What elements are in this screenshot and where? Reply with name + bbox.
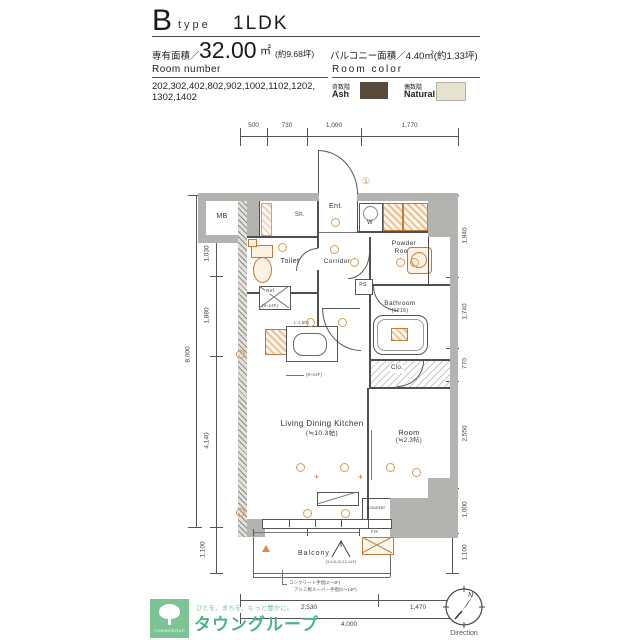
window-mullion [289,519,290,527]
room-numbers-line2: 1302,1402 [152,92,197,103]
area-tsubo: (約9.68坪) [275,48,314,60]
balcony-bottom-1 [253,573,390,574]
cabinet-2 [403,203,428,231]
logo-mark-text: TOWNGROUP [150,628,189,633]
wall-toilet-right-lower [317,270,319,293]
wall-row1-left [247,201,259,237]
wall-kitchen-west [317,292,319,328]
light-icon [278,243,287,252]
dim-label: 770 [462,347,469,381]
ps-label: PS [355,282,371,288]
wall-top-left [238,193,319,201]
area-unit: ㎡ [260,42,271,58]
balcony-label: Balcony [298,550,330,559]
layout-label: 1LDK [233,13,289,35]
dim-label: 1,000 [307,122,361,129]
ash-name: Ash [332,89,349,99]
dim-tick [240,128,241,146]
light-icon [386,463,395,472]
dim-line [216,195,217,573]
light-icon [396,258,405,267]
room-size: (≒2.3帖) [384,438,434,446]
shoe-shelf [261,203,272,236]
dim-label: 1,880 [204,299,211,333]
balcony-bottom-2 [253,577,390,578]
sill-tick [253,529,254,536]
dim-tick [210,527,223,528]
room-numbers-line1: 202,302,402,802,902,1002,1102,1202, [152,81,315,92]
room-color-rule [332,77,480,78]
light-icon [330,245,339,254]
wall-bottom-right-step [428,478,458,498]
room-number-rule [152,77,328,78]
ldk-size: (≒10.3帖) [262,430,382,438]
fridge-label: Ref. [265,288,277,294]
dim-label: 1,940 [462,219,469,253]
bathroom-size: (1216) [376,308,424,314]
counter-diagonal [317,492,357,504]
dim-label: 730 [267,122,307,129]
dim-tick [210,573,223,574]
light-icon [236,350,245,359]
dim-line [240,136,458,137]
light-icon [306,318,315,327]
dim-tick [210,276,223,277]
logo-name: タウングループ [194,610,319,635]
room-number-label: Room number [152,64,221,75]
ent-label: Ent. [324,203,348,212]
dim-label: 2,550 [462,417,469,451]
entrance-door-arc [318,150,358,194]
dim-label: 4,140 [204,424,211,458]
light-icon [410,258,419,267]
washer-drum [363,206,378,221]
dim-label: 8,000 [185,338,192,372]
area-label: 専有面積／ [152,48,200,62]
dim-tick [267,128,268,146]
ceiling-hook-icon: + [358,472,363,482]
wall-closet-bottom [369,387,450,389]
ceiling-hook-icon: + [314,472,319,482]
balcony-tap-icon [262,545,270,552]
sh-label: Sh. [290,212,310,220]
dim-label: 1,740 [462,295,469,329]
dim-label: 500 [240,122,267,129]
light-icon [340,463,349,472]
stove [265,329,287,355]
toilet-label: Toilet [270,258,310,267]
ash-swatch [360,82,388,99]
dim-tick [188,527,202,528]
type-word: type [178,19,211,31]
ldk-label: Living Dining Kitchen [262,419,382,429]
dim-line [196,195,197,527]
wall-toilet-top [247,236,318,238]
floors-note-2: (9~14F) [306,372,322,377]
light-icon [350,258,359,267]
wall-top-right [357,193,458,201]
rail-note-1: コンクリート手摺(2〜4F) [289,580,340,586]
dim-label: 1,000 [462,493,469,527]
dim-line [240,600,458,601]
entrance-mark: ① [362,176,370,187]
counter-label: Counter [362,505,390,511]
compass: N [441,584,487,630]
sill-tick [359,529,360,536]
note-leader-h [282,584,287,585]
wall-toilet-right-upper [317,237,319,248]
natural-swatch [436,82,466,101]
light-icon [236,508,245,517]
entrance-step [319,232,357,233]
mb-label: MB [206,213,238,222]
nook-wall-top [362,498,390,499]
town-group-logo: TOWNGROUP [150,599,189,638]
light-icon [303,509,312,518]
tree-trunk [168,617,171,625]
natural-name: Natural [404,89,435,99]
cabinet-1 [383,203,403,231]
fix-window-label: FIX [371,529,378,534]
direction-label: Direction [441,630,487,637]
wall-ldk-window-left [247,519,262,527]
room-label: Room [384,428,434,437]
kitchen-sink [293,333,327,356]
wall-bottom-right-chunk [390,498,458,538]
washer-label: W [359,220,381,228]
dim-label: 1,100 [462,536,469,570]
sill-tick [307,529,308,536]
dim-label: 1,100 [200,533,207,567]
wall-left-hatched [238,201,247,537]
dim-tick [446,573,459,574]
balcony-area: バルコニー面積／4.40㎡(約1.33坪) [330,48,478,62]
wall-washbasin-left [428,237,429,285]
type-letter: B [152,4,172,37]
floors-note-1: (9~14F) [262,303,278,308]
dim-tick [361,128,362,146]
floors-note-2-leader [286,375,304,376]
floorplan-sheet: B type 1LDK 専有面積／ 32.00 ㎡ (約9.68坪) バルコニー… [0,0,641,640]
window-mullion [341,519,342,527]
ldk-window [262,519,370,529]
evacuation-hatch-x [362,537,392,553]
light-icon [412,468,421,477]
page-title: B [152,4,172,38]
sliding-door-line [371,430,372,480]
note-leader-v [282,570,283,584]
light-icon [331,218,340,227]
hatch-floors-label: (3,5,8,10,12,14F) [320,559,362,564]
light-icon [338,318,347,327]
toilet-paper-holder [248,239,257,247]
hatch-triangle-icon [329,539,353,559]
dim-tick [307,128,308,146]
light-icon [341,509,350,518]
rail-note-2: アルミ製ルーバー手摺(5〜14F) [294,587,357,593]
dim-label: 1,770 [361,122,458,129]
bath-counter [391,328,408,341]
wall-sh-left [259,201,260,237]
area-value: 32.00 [199,37,257,64]
balcony-left-edge [253,537,254,577]
dim-tick [210,356,223,357]
light-icon [296,463,305,472]
dim-tick [458,128,459,146]
wall-row1-bottom-right [357,231,428,233]
bathroom-label: Bathroom [376,300,424,308]
wall-ldk-room [367,388,369,519]
room-color-label: Room color [332,64,403,75]
window-mullion [315,519,316,527]
wall-w-left [357,201,358,232]
fix-window [368,519,392,529]
